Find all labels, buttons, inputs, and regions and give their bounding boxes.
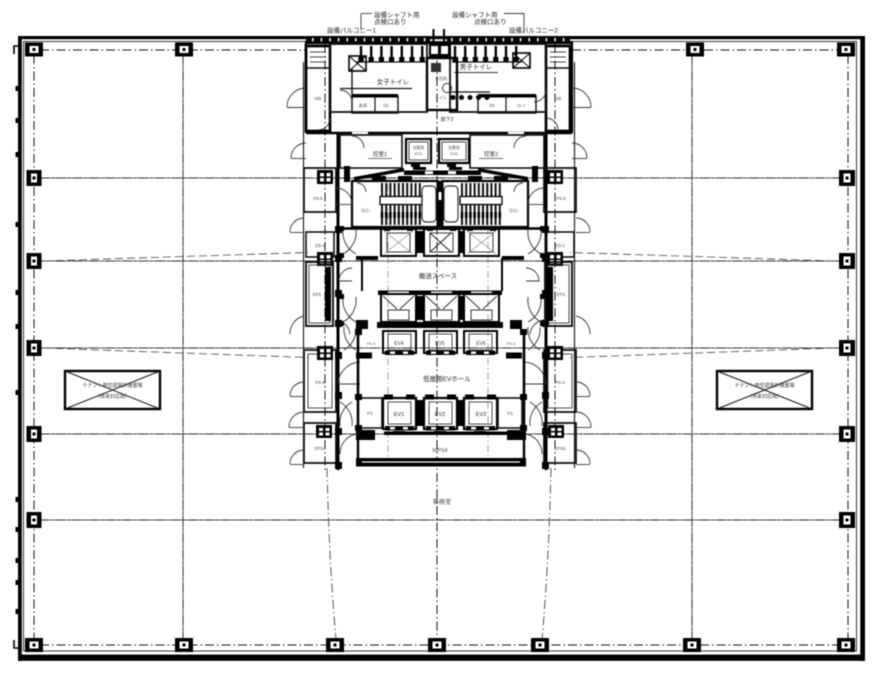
svg-text:多目的: 多目的	[435, 75, 447, 81]
svg-text:控室2: 控室2	[484, 150, 498, 158]
svg-text:廊下3: 廊下3	[441, 116, 454, 123]
svg-text:EV1: EV1	[415, 152, 422, 156]
svg-text:設備バルコニー1: 設備バルコニー1	[327, 26, 376, 35]
svg-text:D5: D5	[383, 103, 389, 108]
svg-text:階段2: 階段2	[509, 208, 519, 213]
svg-text:女子トイレ: 女子トイレ	[377, 77, 410, 86]
svg-text:EPS: EPS	[557, 292, 566, 297]
svg-text:階段1: 階段1	[361, 208, 371, 213]
svg-text:PS-6: PS-6	[313, 196, 323, 201]
svg-text:EV2: EV2	[450, 152, 457, 156]
svg-text:台数用: 台数用	[413, 145, 425, 150]
svg-text:設備シャフト用: 設備シャフト用	[452, 10, 498, 19]
svg-text:MB: MB	[555, 96, 562, 101]
svg-text:D6: D6	[489, 103, 495, 108]
svg-text:事務室: 事務室	[433, 498, 452, 506]
svg-text:点検口あり: 点検口あり	[474, 17, 507, 26]
svg-text:MPS4: MPS4	[433, 448, 448, 454]
svg-text:設備バルコニー2: 設備バルコニー2	[509, 26, 558, 35]
svg-text:男子トイレ: 男子トイレ	[460, 63, 493, 71]
svg-text:PS-4: PS-4	[555, 380, 565, 385]
svg-text:MB: MB	[315, 96, 322, 101]
svg-text:PS-3: PS-3	[367, 342, 375, 346]
svg-text:EV1: EV1	[394, 412, 404, 418]
svg-text:EV5: EV5	[435, 341, 445, 347]
svg-text:EV2: EV2	[435, 412, 445, 418]
svg-text:テナント用空調室外機置場: テナント用空調室外機置場	[734, 382, 794, 389]
svg-text:テナント用空調室外機置場: テナント用空調室外機置場	[82, 382, 142, 389]
svg-text:EPS: EPS	[313, 292, 322, 297]
svg-text:低層用EVホール: 低層用EVホール	[423, 374, 471, 383]
svg-text:DS-1: DS-1	[315, 243, 325, 248]
svg-text:EV6: EV6	[476, 341, 486, 347]
svg-text:控室1: 控室1	[373, 150, 387, 158]
svg-text:ｸﾛｰｸ: ｸﾛｰｸ	[517, 103, 525, 108]
svg-text:EV4: EV4	[394, 341, 404, 347]
svg-text:台数用: 台数用	[448, 145, 460, 150]
svg-text:設備シャフト用: 設備シャフト用	[374, 10, 420, 19]
svg-text:EPS4: EPS4	[315, 446, 326, 451]
svg-text:PS-5: PS-5	[556, 196, 566, 201]
svg-text:（将来対応用）: （将来対応用）	[95, 393, 130, 400]
svg-text:搬送スペース: 搬送スペース	[419, 271, 457, 280]
svg-text:トイレ: トイレ	[435, 95, 447, 100]
svg-text:PS-3: PS-3	[507, 342, 515, 346]
svg-text:（将来対応用）: （将来対応用）	[747, 393, 782, 400]
svg-text:倉庫: 倉庫	[359, 102, 367, 109]
svg-text:点検口あり: 点検口あり	[374, 17, 407, 26]
svg-text:PS-8: PS-8	[315, 380, 325, 385]
svg-text:PS: PS	[507, 411, 513, 416]
svg-text:PS: PS	[367, 411, 373, 416]
svg-text:DS-2: DS-2	[555, 243, 565, 248]
svg-text:EV3: EV3	[476, 412, 486, 418]
svg-text:EPS5: EPS5	[555, 446, 566, 451]
